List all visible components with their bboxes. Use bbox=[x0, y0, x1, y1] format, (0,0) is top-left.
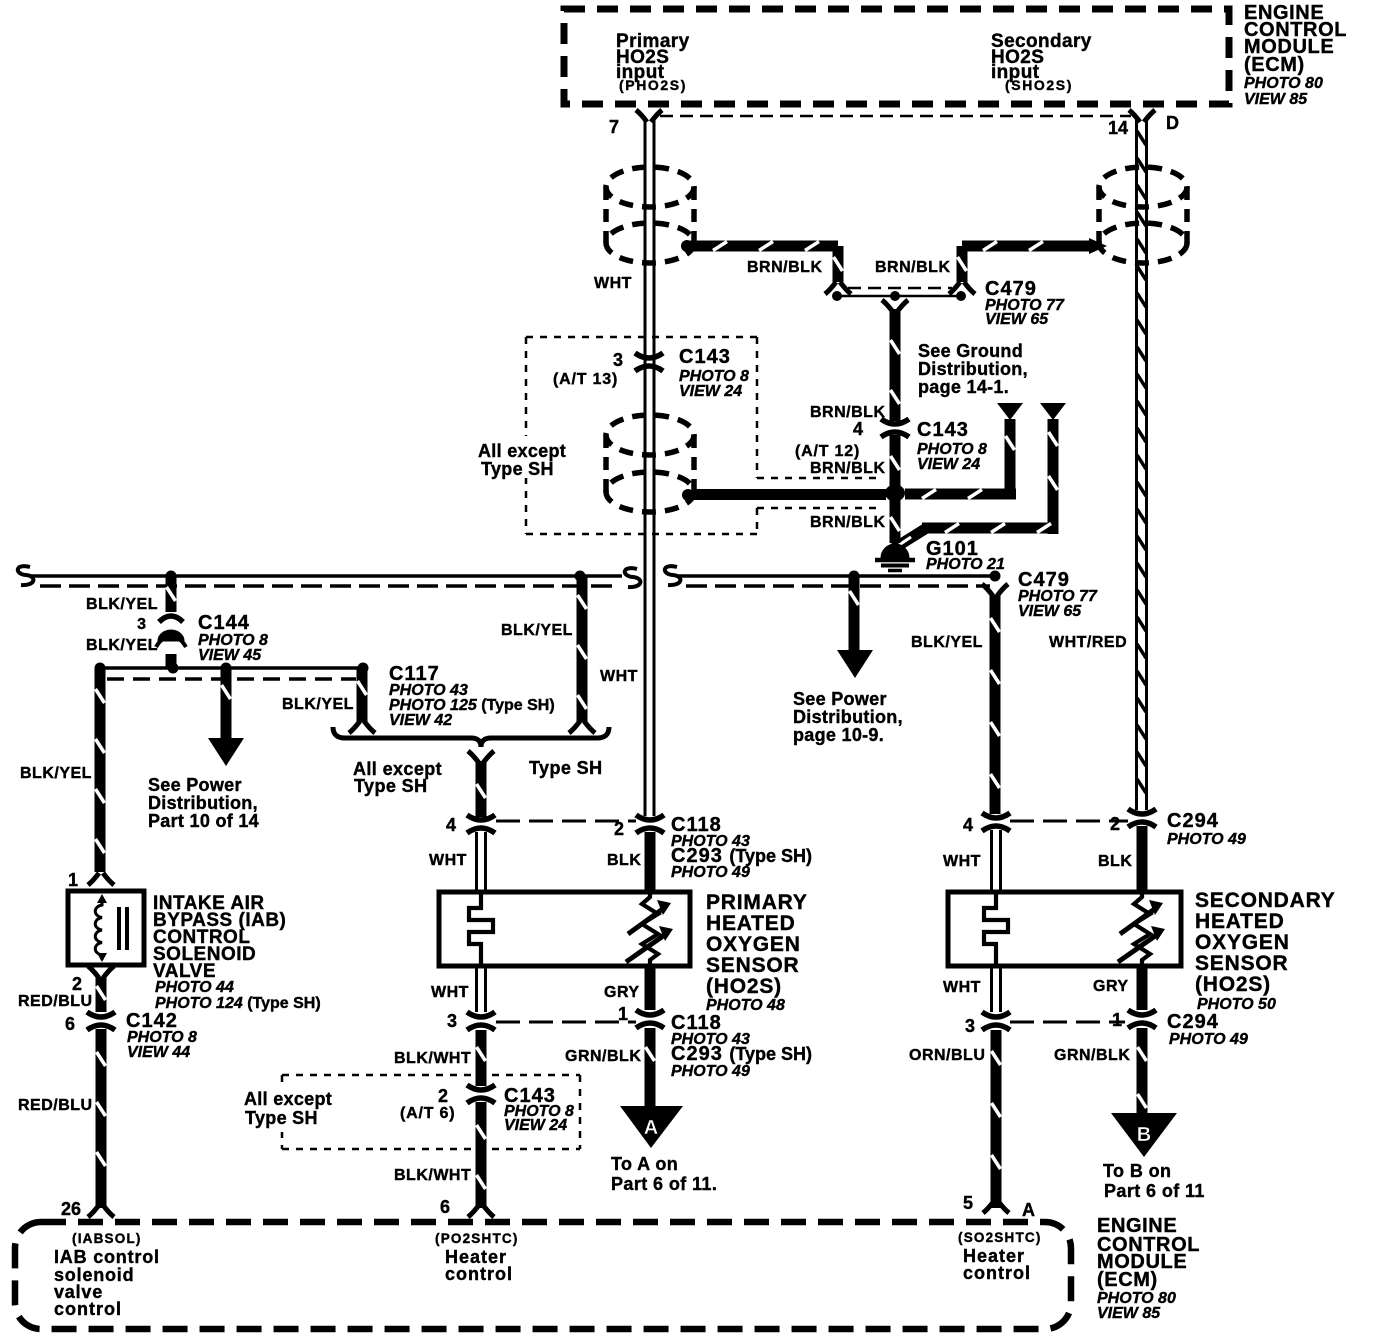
svg-text:HEATED: HEATED bbox=[706, 912, 796, 935]
svg-text:(PO2SHTC): (PO2SHTC) bbox=[435, 1231, 519, 1246]
svg-text:BRN/BLK: BRN/BLK bbox=[875, 259, 951, 276]
svg-text:2: 2 bbox=[614, 819, 624, 839]
svg-text:BLK/YEL: BLK/YEL bbox=[501, 622, 573, 639]
svg-text:VIEW 44: VIEW 44 bbox=[127, 1044, 190, 1061]
svg-text:GRY: GRY bbox=[604, 984, 640, 1001]
svg-text:Distribution,: Distribution, bbox=[793, 707, 903, 727]
svg-text:Distribution,: Distribution, bbox=[918, 359, 1028, 379]
svg-text:Type SH: Type SH bbox=[481, 459, 554, 479]
svg-text:PHOTO 49: PHOTO 49 bbox=[1169, 1031, 1248, 1048]
svg-text:To B on: To B on bbox=[1103, 1161, 1171, 1181]
svg-text:Part 6 of 11.: Part 6 of 11. bbox=[611, 1174, 717, 1194]
svg-text:GRN/BLK: GRN/BLK bbox=[1054, 1047, 1130, 1064]
svg-text:PHOTO 49: PHOTO 49 bbox=[1167, 831, 1246, 848]
svg-text:C143: C143 bbox=[917, 419, 969, 441]
svg-text:BLK/YEL: BLK/YEL bbox=[282, 696, 354, 713]
svg-text:B: B bbox=[1137, 1124, 1151, 1146]
svg-text:C294: C294 bbox=[1167, 1011, 1219, 1033]
svg-text:BLK/WHT: BLK/WHT bbox=[394, 1050, 471, 1067]
svg-text:(IABSOL): (IABSOL) bbox=[72, 1231, 142, 1246]
svg-text:(SO2SHTC): (SO2SHTC) bbox=[958, 1230, 1042, 1245]
svg-text:RED/BLU: RED/BLU bbox=[18, 1097, 93, 1114]
svg-text:See Power: See Power bbox=[148, 775, 242, 795]
svg-text:1: 1 bbox=[618, 1004, 628, 1024]
svg-text:PHOTO 21: PHOTO 21 bbox=[926, 556, 1005, 573]
svg-text:VIEW 85: VIEW 85 bbox=[1097, 1305, 1161, 1322]
svg-text:WHT/RED: WHT/RED bbox=[1049, 634, 1127, 651]
svg-text:1: 1 bbox=[68, 870, 78, 890]
svg-text:All except: All except bbox=[244, 1089, 332, 1109]
svg-text:BRN/BLK: BRN/BLK bbox=[747, 259, 823, 276]
svg-text:control: control bbox=[54, 1299, 122, 1319]
svg-text:6: 6 bbox=[440, 1197, 450, 1217]
svg-text:3: 3 bbox=[965, 1016, 975, 1036]
svg-text:(ECM): (ECM) bbox=[1097, 1269, 1158, 1291]
svg-text:VIEW 85: VIEW 85 bbox=[1244, 91, 1308, 108]
svg-text:(HO2S): (HO2S) bbox=[706, 975, 782, 998]
svg-text:BLK/WHT: BLK/WHT bbox=[394, 1167, 471, 1184]
svg-text:4: 4 bbox=[446, 815, 456, 835]
svg-text:PHOTO 124 (Type SH): PHOTO 124 (Type SH) bbox=[155, 995, 321, 1012]
svg-text:VIEW 24: VIEW 24 bbox=[504, 1117, 567, 1134]
svg-text:VIEW 24: VIEW 24 bbox=[679, 383, 742, 400]
svg-text:VIEW 65: VIEW 65 bbox=[1018, 603, 1082, 620]
svg-text:(HO2S): (HO2S) bbox=[1195, 973, 1271, 996]
svg-text:WHT: WHT bbox=[594, 275, 632, 292]
svg-text:5: 5 bbox=[963, 1193, 973, 1213]
svg-text:3: 3 bbox=[447, 1011, 457, 1031]
svg-text:HEATED: HEATED bbox=[1195, 910, 1285, 933]
svg-text:Distribution,: Distribution, bbox=[148, 793, 258, 813]
svg-text:WHT: WHT bbox=[943, 979, 981, 996]
svg-text:BLK/YEL: BLK/YEL bbox=[911, 634, 983, 651]
svg-text:6: 6 bbox=[65, 1014, 75, 1034]
svg-text:(A/T 13): (A/T 13) bbox=[553, 371, 618, 388]
svg-text:BLK/YEL: BLK/YEL bbox=[86, 637, 158, 654]
svg-text:VIEW 24: VIEW 24 bbox=[917, 456, 980, 473]
svg-text:Type SH: Type SH bbox=[354, 776, 427, 796]
svg-text:OXYGEN: OXYGEN bbox=[1195, 931, 1290, 954]
svg-text:VIEW 42: VIEW 42 bbox=[389, 712, 452, 729]
svg-text:GRY: GRY bbox=[1093, 978, 1129, 995]
svg-text:SENSOR: SENSOR bbox=[1195, 952, 1289, 975]
svg-text:BLK: BLK bbox=[1098, 853, 1132, 870]
svg-text:7: 7 bbox=[609, 117, 619, 137]
svg-text:PHOTO 80: PHOTO 80 bbox=[1244, 75, 1323, 92]
svg-text:PRIMARY: PRIMARY bbox=[706, 891, 808, 914]
svg-text:PHOTO 49: PHOTO 49 bbox=[671, 864, 750, 881]
svg-text:SENSOR: SENSOR bbox=[706, 954, 800, 977]
svg-text:WHT: WHT bbox=[943, 853, 981, 870]
svg-text:PHOTO 49: PHOTO 49 bbox=[671, 1063, 750, 1080]
svg-text:C143: C143 bbox=[679, 346, 731, 368]
svg-text:2: 2 bbox=[438, 1086, 448, 1106]
svg-text:Type SH: Type SH bbox=[529, 758, 602, 778]
svg-text:C144: C144 bbox=[198, 612, 250, 634]
svg-text:14: 14 bbox=[1108, 118, 1128, 138]
svg-text:(ECM): (ECM) bbox=[1244, 54, 1305, 76]
svg-text:To A on: To A on bbox=[611, 1154, 678, 1174]
svg-text:A: A bbox=[1022, 1200, 1035, 1220]
svg-text:WHT: WHT bbox=[431, 984, 469, 1001]
svg-text:OXYGEN: OXYGEN bbox=[706, 933, 801, 956]
svg-text:WHT: WHT bbox=[600, 668, 638, 685]
svg-text:page 10-9.: page 10-9. bbox=[793, 725, 884, 745]
svg-text:BLK/YEL: BLK/YEL bbox=[86, 596, 158, 613]
svg-text:BLK: BLK bbox=[607, 852, 641, 869]
svg-text:All except: All except bbox=[478, 441, 566, 461]
svg-text:Part 10 of 14: Part 10 of 14 bbox=[148, 811, 259, 831]
svg-text:See Power: See Power bbox=[793, 689, 887, 709]
svg-text:A: A bbox=[644, 1117, 658, 1139]
svg-text:GRN/BLK: GRN/BLK bbox=[565, 1048, 641, 1065]
svg-text:BRN/BLK: BRN/BLK bbox=[810, 514, 886, 531]
svg-text:BRN/BLK: BRN/BLK bbox=[810, 404, 886, 421]
svg-text:4: 4 bbox=[853, 419, 863, 439]
svg-text:control: control bbox=[445, 1264, 513, 1284]
svg-text:3: 3 bbox=[613, 350, 623, 370]
svg-text:PHOTO 44: PHOTO 44 bbox=[155, 979, 234, 996]
svg-text:D: D bbox=[1166, 113, 1179, 133]
svg-text:IAB control: IAB control bbox=[54, 1247, 160, 1267]
svg-text:ORN/BLU: ORN/BLU bbox=[909, 1047, 985, 1064]
svg-text:(A/T 12): (A/T 12) bbox=[795, 443, 860, 460]
svg-text:WHT: WHT bbox=[429, 852, 467, 869]
svg-text:C294: C294 bbox=[1167, 810, 1219, 832]
svg-text:2: 2 bbox=[72, 974, 82, 994]
svg-text:C293 (Type SH): C293 (Type SH) bbox=[671, 1043, 812, 1065]
svg-text:1: 1 bbox=[1112, 1010, 1122, 1030]
svg-text:BRN/BLK: BRN/BLK bbox=[810, 460, 886, 477]
svg-text:See Ground: See Ground bbox=[918, 341, 1023, 361]
svg-text:VIEW 65: VIEW 65 bbox=[985, 311, 1049, 328]
svg-text:page 14-1.: page 14-1. bbox=[918, 377, 1009, 397]
svg-text:26: 26 bbox=[61, 1199, 81, 1219]
svg-text:RED/BLU: RED/BLU bbox=[18, 993, 93, 1010]
svg-text:Part 6 of 11: Part 6 of 11 bbox=[1104, 1181, 1205, 1201]
svg-text:(PHO2S): (PHO2S) bbox=[619, 77, 687, 93]
svg-text:2: 2 bbox=[1110, 814, 1120, 834]
svg-text:Type SH: Type SH bbox=[245, 1108, 318, 1128]
svg-text:3: 3 bbox=[137, 616, 146, 633]
svg-text:SECONDARY: SECONDARY bbox=[1195, 889, 1336, 912]
svg-text:4: 4 bbox=[963, 815, 973, 835]
svg-text:BLK/YEL: BLK/YEL bbox=[20, 765, 92, 782]
svg-text:control: control bbox=[963, 1263, 1031, 1283]
svg-text:(SHO2S): (SHO2S) bbox=[1005, 77, 1073, 93]
svg-text:(A/T 6): (A/T 6) bbox=[400, 1105, 455, 1122]
svg-text:VIEW 45: VIEW 45 bbox=[198, 647, 262, 664]
